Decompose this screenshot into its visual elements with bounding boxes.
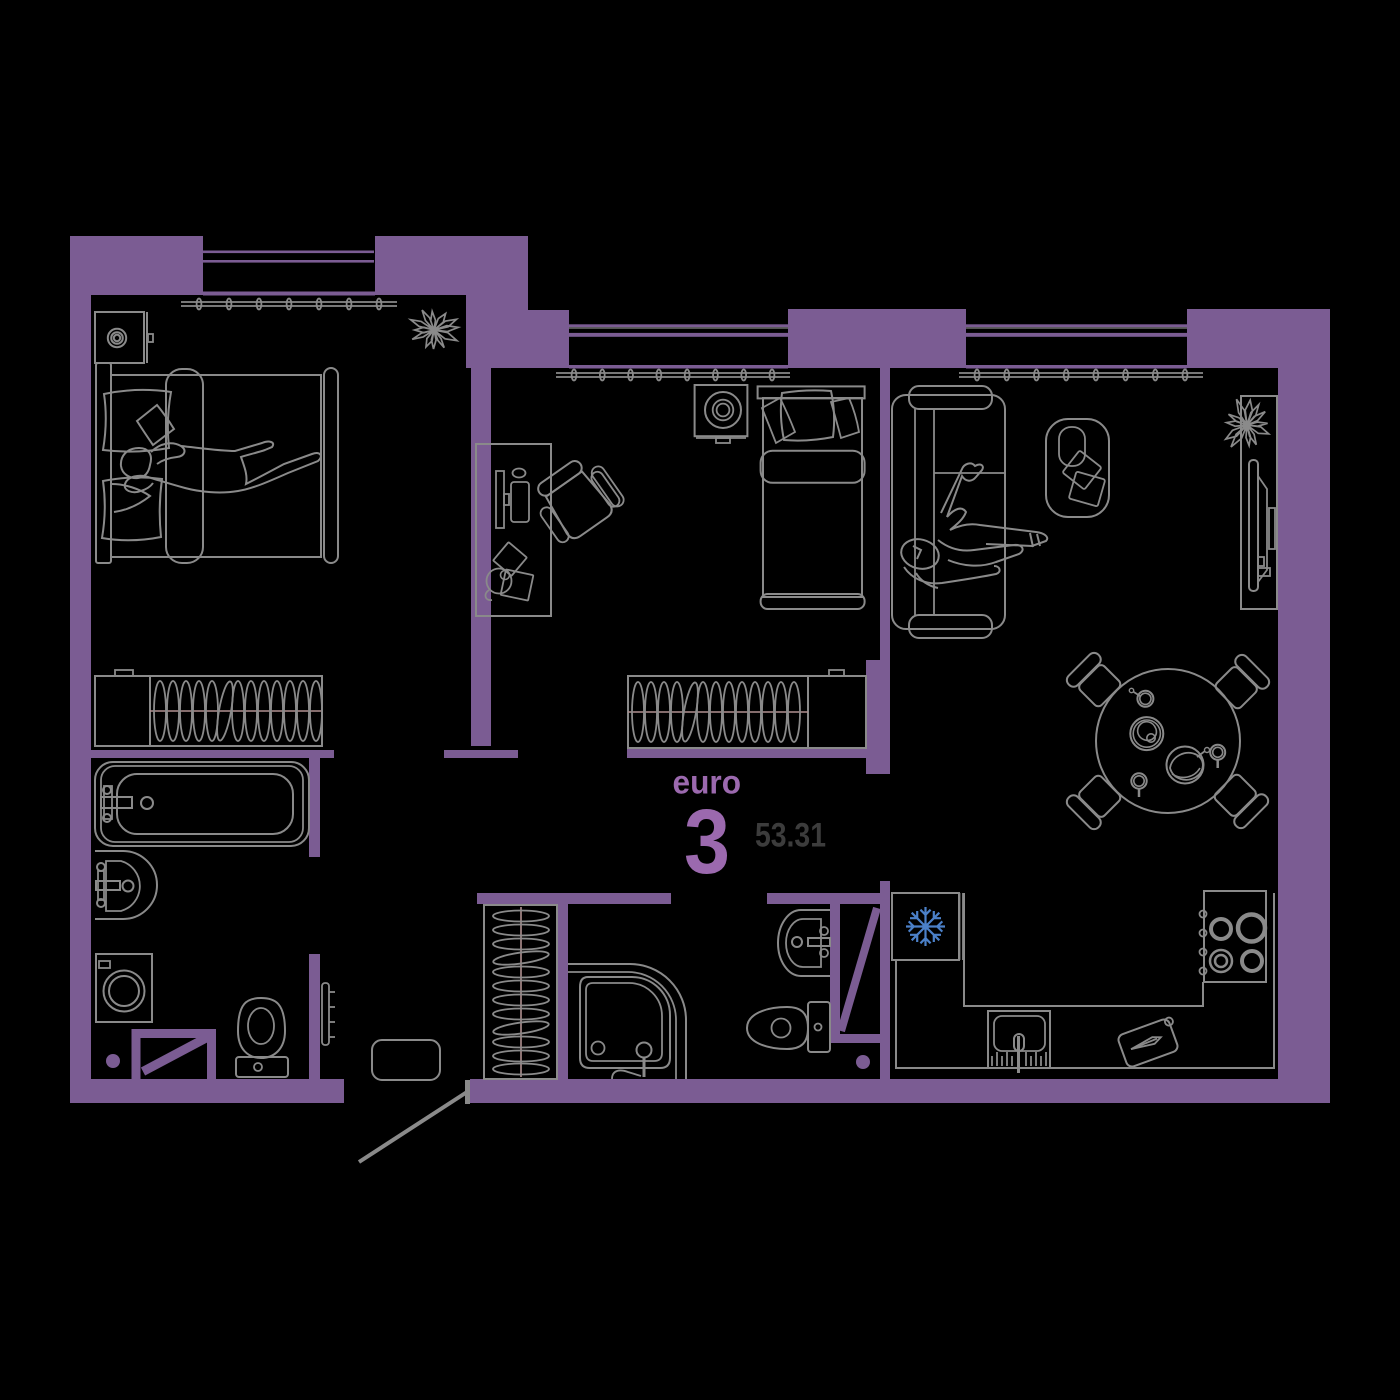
svg-text:3: 3 [684, 791, 730, 893]
svg-text:53.31: 53.31 [755, 817, 826, 855]
